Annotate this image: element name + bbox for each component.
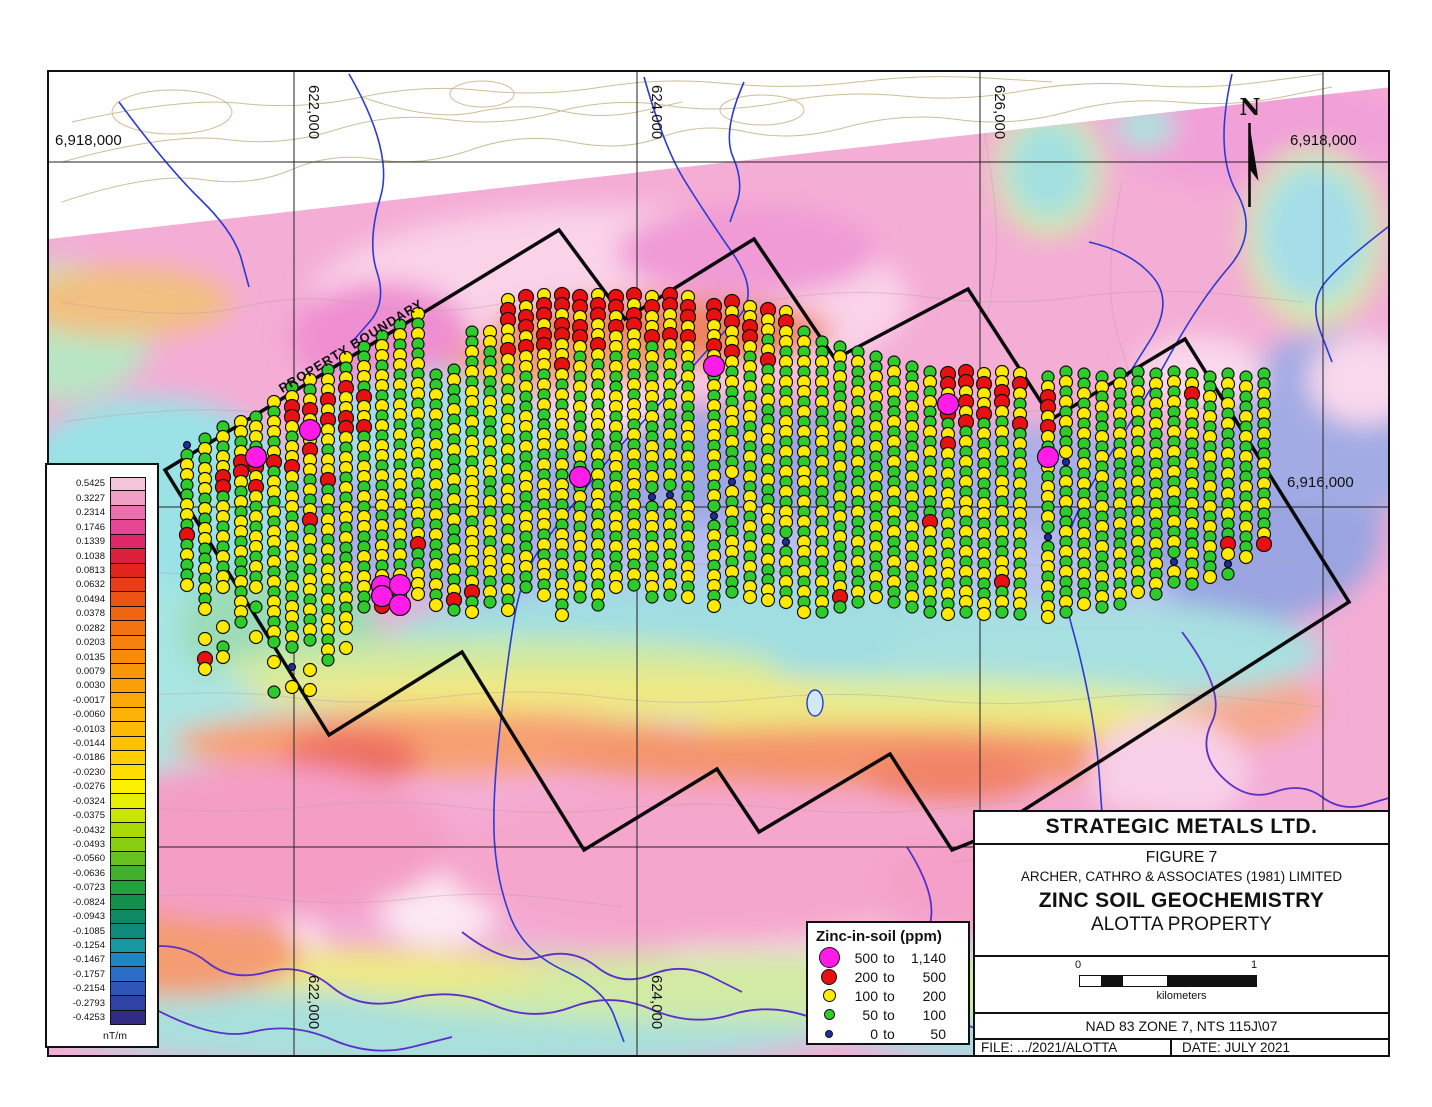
color-scale-row: 0.1339 [51,535,149,549]
color-scale-row: -0.1757 [51,967,149,981]
color-scale-row: -0.0324 [51,794,149,808]
color-scale-row: 0.0282 [51,621,149,635]
title-block: STRATEGIC METALS LTD. FIGURE 7 ARCHER, C… [973,810,1390,1057]
datum-line: NAD 83 ZONE 7, NTS 115J\07 [975,1012,1388,1038]
color-scale-row: -0.0723 [51,881,149,895]
color-scale-row: -0.0186 [51,751,149,765]
color-scale-row: 0.0203 [51,636,149,650]
easting-label-624000-bottom: 624,000 [648,975,665,1029]
legend-rows: 500to1,140200to500100to20050to1000to50 [816,948,962,1043]
color-scale-row: -0.1085 [51,924,149,938]
color-scale-row: -0.0560 [51,852,149,866]
easting-label-622000-top: 622,000 [305,85,322,139]
color-scale-row: 0.0135 [51,650,149,664]
color-scale-row: -0.2793 [51,996,149,1010]
scale-end-label: 1 [1251,959,1257,971]
map-subtitle: ALOTTA PROPERTY [975,914,1388,936]
scale-unit: kilometers [975,990,1388,1002]
color-scale-row: -0.0943 [51,910,149,924]
color-scale-row: 0.0079 [51,664,149,678]
color-scale-row: -0.0375 [51,809,149,823]
color-scale-row: -0.0103 [51,722,149,736]
north-arrow-icon [1235,119,1265,211]
color-scale-row: -0.2154 [51,982,149,996]
company-name: STRATEGIC METALS LTD. [975,812,1388,845]
northing-label-top-right: 6,918,000 [1290,132,1357,149]
color-scale-row: -0.0017 [51,693,149,707]
color-scale-row: -0.0824 [51,895,149,909]
color-scale-row: 0.3227 [51,491,149,505]
color-scale-row: -0.1254 [51,939,149,953]
scale-bar [1079,975,1257,987]
legend-row: 200to500 [816,967,962,986]
color-scale-row: 0.0632 [51,578,149,592]
easting-label-624000-top: 624,000 [648,85,665,139]
color-scale-row: -0.0230 [51,765,149,779]
color-scale-rows: 0.54250.32270.23140.17460.13390.10380.08… [51,477,149,1025]
easting-label-626000-top: 626,000 [991,85,1008,139]
author-line: ARCHER, CATHRO & ASSOCIATES (1981) LIMIT… [975,869,1388,884]
color-scale-row: -0.0144 [51,737,149,751]
map-sheet: 6,918,000 6,918,000 6,916,000 622,000 62… [0,0,1432,1107]
north-letter: N [1228,96,1272,119]
color-scale-row: 0.0378 [51,607,149,621]
file-label: FILE: .../2021/ALOTTA [975,1040,1172,1055]
figure-info: FIGURE 7 ARCHER, CATHRO & ASSOCIATES (19… [975,845,1388,958]
scale-start-label: 0 [1075,959,1081,971]
legend-row: 100to200 [816,986,962,1005]
northing-label-mid-right: 6,916,000 [1287,474,1354,491]
color-scale-row: 0.5425 [51,477,149,491]
zinc-legend: Zinc-in-soil (ppm) 500to1,140200to500100… [806,921,970,1045]
color-scale-row: -0.0432 [51,823,149,837]
color-scale-row: 0.0030 [51,679,149,693]
legend-row: 500to1,140 [816,948,962,967]
color-scale-row: -0.1467 [51,953,149,967]
color-scale-row: 0.2314 [51,506,149,520]
north-arrow: N [1228,96,1272,216]
legend-row: 50to100 [816,1005,962,1024]
color-scale-unit: nT/m [51,1025,149,1042]
color-scale-row: -0.0060 [51,708,149,722]
color-scale-row: -0.0636 [51,866,149,880]
color-scale-row: -0.4253 [51,1011,149,1025]
color-scale-row: -0.0493 [51,838,149,852]
easting-label-622000-bottom: 622,000 [305,975,322,1029]
northing-label-top-left: 6,918,000 [55,132,122,149]
color-scale-row: -0.0276 [51,780,149,794]
legend-title: Zinc-in-soil (ppm) [816,928,962,945]
scale-bar-section: 0 1 kilometers [975,957,1388,1012]
file-date-row: FILE: .../2021/ALOTTA DATE: JULY 2021 [975,1038,1388,1055]
color-scale-row: 0.1038 [51,549,149,563]
magnetics-color-scale: 0.54250.32270.23140.17460.13390.10380.08… [45,463,159,1048]
legend-row: 0to50 [816,1024,962,1043]
map-title: ZINC SOIL GEOCHEMISTRY [975,889,1388,913]
date-label: DATE: JULY 2021 [1172,1040,1388,1055]
color-scale-row: 0.0494 [51,592,149,606]
figure-number: FIGURE 7 [975,849,1388,867]
color-scale-row: 0.0813 [51,564,149,578]
color-scale-row: 0.1746 [51,520,149,534]
